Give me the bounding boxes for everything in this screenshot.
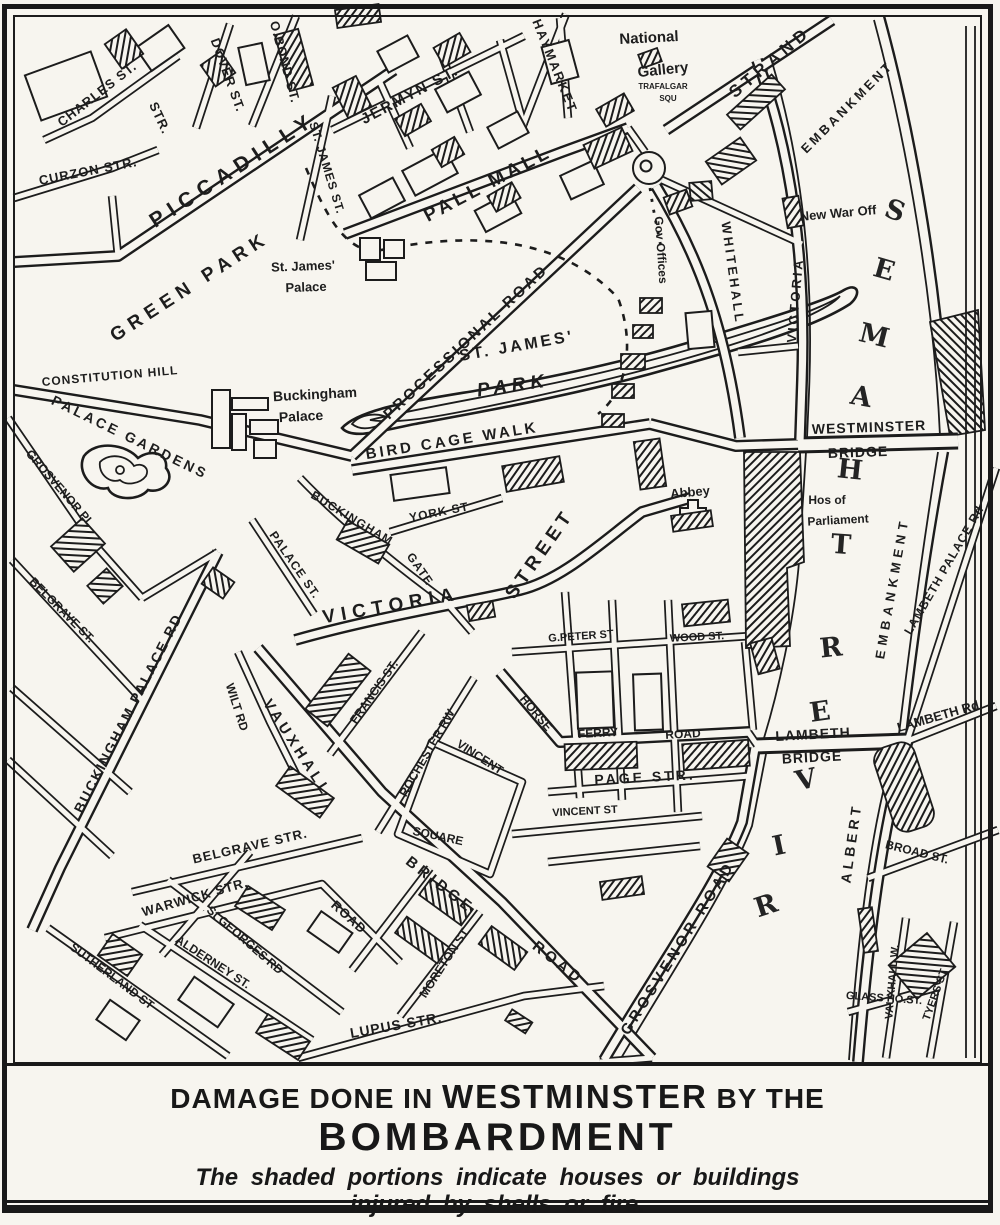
st-james-palace-line2: Palace — [285, 280, 327, 294]
pall-mall: PALL MALL — [421, 142, 555, 225]
vincent-square-part1: VINCENT — [455, 738, 506, 777]
wood-street: WOOD ST. — [670, 631, 725, 645]
bombardment-map-page: CHARLES ST.STR.CURZON STR.DOVER ST.O.BON… — [0, 0, 1000, 1225]
new-war-office: New War Off — [799, 203, 877, 223]
horseferry-road-part1: HORSE — [518, 693, 555, 733]
river-thames-letter-0: R — [751, 888, 782, 924]
river-thames-letter-9: E — [870, 252, 898, 287]
wilton-road: WILT RD — [224, 682, 251, 732]
str-fragment: STR. — [147, 100, 173, 136]
curzon-street: CURZON STR. — [38, 155, 138, 187]
horseferry-road-part3: ROAD — [665, 727, 701, 741]
tyers-street: TYERS ST — [922, 968, 951, 1022]
buckingham-palace-line1: Buckingham — [273, 385, 358, 403]
river-thames-letter-10: S — [881, 193, 910, 229]
river-thames-letter-1: I — [770, 830, 789, 863]
green-park: GREEN PARK — [107, 229, 273, 346]
broad-street: BROAD ST. — [884, 838, 950, 865]
river-thames-letter-3: E — [808, 695, 833, 729]
river-thames-letter-4: R — [818, 631, 844, 664]
abbey: Abbey — [670, 484, 711, 500]
river-thames-letter-7: A — [848, 380, 874, 414]
horseferry-road-part2: FERRY — [578, 726, 619, 740]
trafalgar-square-line2: SQU — [659, 95, 676, 103]
road-fragment: ROAD — [329, 898, 369, 936]
haymarket: HAYMARKET — [530, 17, 579, 114]
gt-peter-street: G.PETER ST — [548, 629, 614, 645]
victoria-embankment-part2: EMBANKMENT — [799, 59, 896, 156]
caption-note: The shaded portions indicate houses or b… — [7, 1165, 988, 1219]
albert-embankment-part2: EMBANKMENT — [873, 516, 911, 660]
belgrave-str: BELGRAVE STR. — [191, 826, 308, 865]
lambeth-palace-road: LAMBETH PALACE Rd — [902, 503, 986, 636]
caption-title-prefix: DAMAGE DONE IN — [170, 1083, 442, 1114]
albert-embankment-part1: ALBERT — [838, 802, 863, 884]
vauxhall-bridge-road-part2: BRIDGE — [403, 854, 477, 917]
houses-of-parliament-line1: Hos of — [808, 494, 845, 506]
st-james-park-line2: PARK — [476, 372, 550, 401]
westminster-bridge-line1: WESTMINSTER — [812, 418, 927, 436]
river-thames-letter-2: V — [793, 763, 820, 798]
jermyn-street: JERMYN ST. — [359, 63, 462, 127]
palace-gardens: PALACE GARDENS — [49, 393, 210, 481]
moreton-street: MORETON ST — [417, 926, 471, 999]
caption-title-line2: BOMBARDMENT — [7, 1116, 988, 1160]
bird-cage-walk: BIRD CAGE WALK — [365, 420, 540, 462]
grosvenor-road: GROSVENOR ROAD — [618, 858, 738, 1037]
houses-of-parliament-line2: Parliament — [807, 512, 869, 527]
vincent-street: VINCENT ST — [552, 805, 618, 819]
national-gallery-line1: National — [619, 29, 679, 47]
charles-street: CHARLES ST. — [55, 59, 139, 128]
trafalgar-square-line1: TRAFALGAR — [638, 83, 687, 91]
belgrave-street: BELGRAVE ST. — [27, 575, 97, 645]
sutherland-street: SUTHERLAND ST — [68, 941, 156, 1012]
warwick-str: WARWICK STR. — [140, 876, 249, 919]
caption-note-line2: injured by shells or fire. — [7, 1192, 988, 1219]
victoria-embankment-part1: VICTORIA — [785, 257, 805, 344]
river-thames-letter-5: T — [830, 529, 852, 561]
gov-offices: Gov Offices — [653, 216, 670, 284]
lambeth-road: LAMBETH Rd — [896, 698, 981, 734]
caption-note-line1: The shaded portions indicate houses or b… — [7, 1165, 988, 1192]
palace-street: PALACE ST. — [267, 529, 322, 601]
vauxhall-walk: VAUXHALL W. — [884, 944, 901, 1019]
old-bond-street: O.BOND ST. — [268, 20, 302, 105]
caption-title-line1: DAMAGE DONE IN WESTMINSTER BY THE — [7, 1078, 988, 1116]
buckingham-gate-part2: GATE — [405, 551, 436, 588]
lupus-street: LUPUS STR. — [349, 1010, 443, 1040]
vauxhall-bridge-road-part1: VAUXHALL — [260, 697, 334, 800]
whitehall: WHITEHALL — [719, 221, 746, 325]
river-thames-letter-6: H — [836, 453, 865, 486]
caption-title-suffix: BY THE — [708, 1083, 825, 1114]
victoria-street-part1: VICTORIA — [321, 585, 461, 628]
constitution-hill: CONSTITUTION HILL — [41, 364, 179, 388]
national-gallery-line2: Gallery — [637, 60, 689, 80]
francis-street: FRANCIS ST. — [348, 658, 400, 726]
strand: STRAND — [726, 23, 814, 101]
map-caption: DAMAGE DONE IN WESTMINSTER BY THE BOMBAR… — [7, 1063, 988, 1208]
street-labels-layer: CHARLES ST.STR.CURZON STR.DOVER ST.O.BON… — [0, 0, 1000, 1225]
vauxhall-bridge-road-part3: ROAD — [530, 939, 587, 988]
page-street: PAGE STR. — [594, 767, 696, 786]
buckingham-palace-line2: Palace — [278, 408, 323, 424]
grosvenor-place: GROSVENOR PL — [24, 448, 96, 529]
dover-street: DOVER ST. — [209, 36, 248, 113]
vincent-square-part2: SQUARE — [412, 825, 465, 847]
rochester-row: ROCHESTER RW — [397, 707, 457, 798]
caption-title-emphasis: WESTMINSTER — [442, 1078, 708, 1115]
st-james-street: ST. JAMES ST. — [307, 120, 346, 215]
buckingham-gate-part1: BUCKINGHAM — [309, 489, 395, 547]
york-street: YORK ST — [408, 500, 470, 523]
river-thames-letter-8: M — [856, 317, 893, 354]
victoria-street-part2: STREET — [502, 506, 578, 603]
st-james-palace-line1: St. James' — [271, 258, 335, 273]
